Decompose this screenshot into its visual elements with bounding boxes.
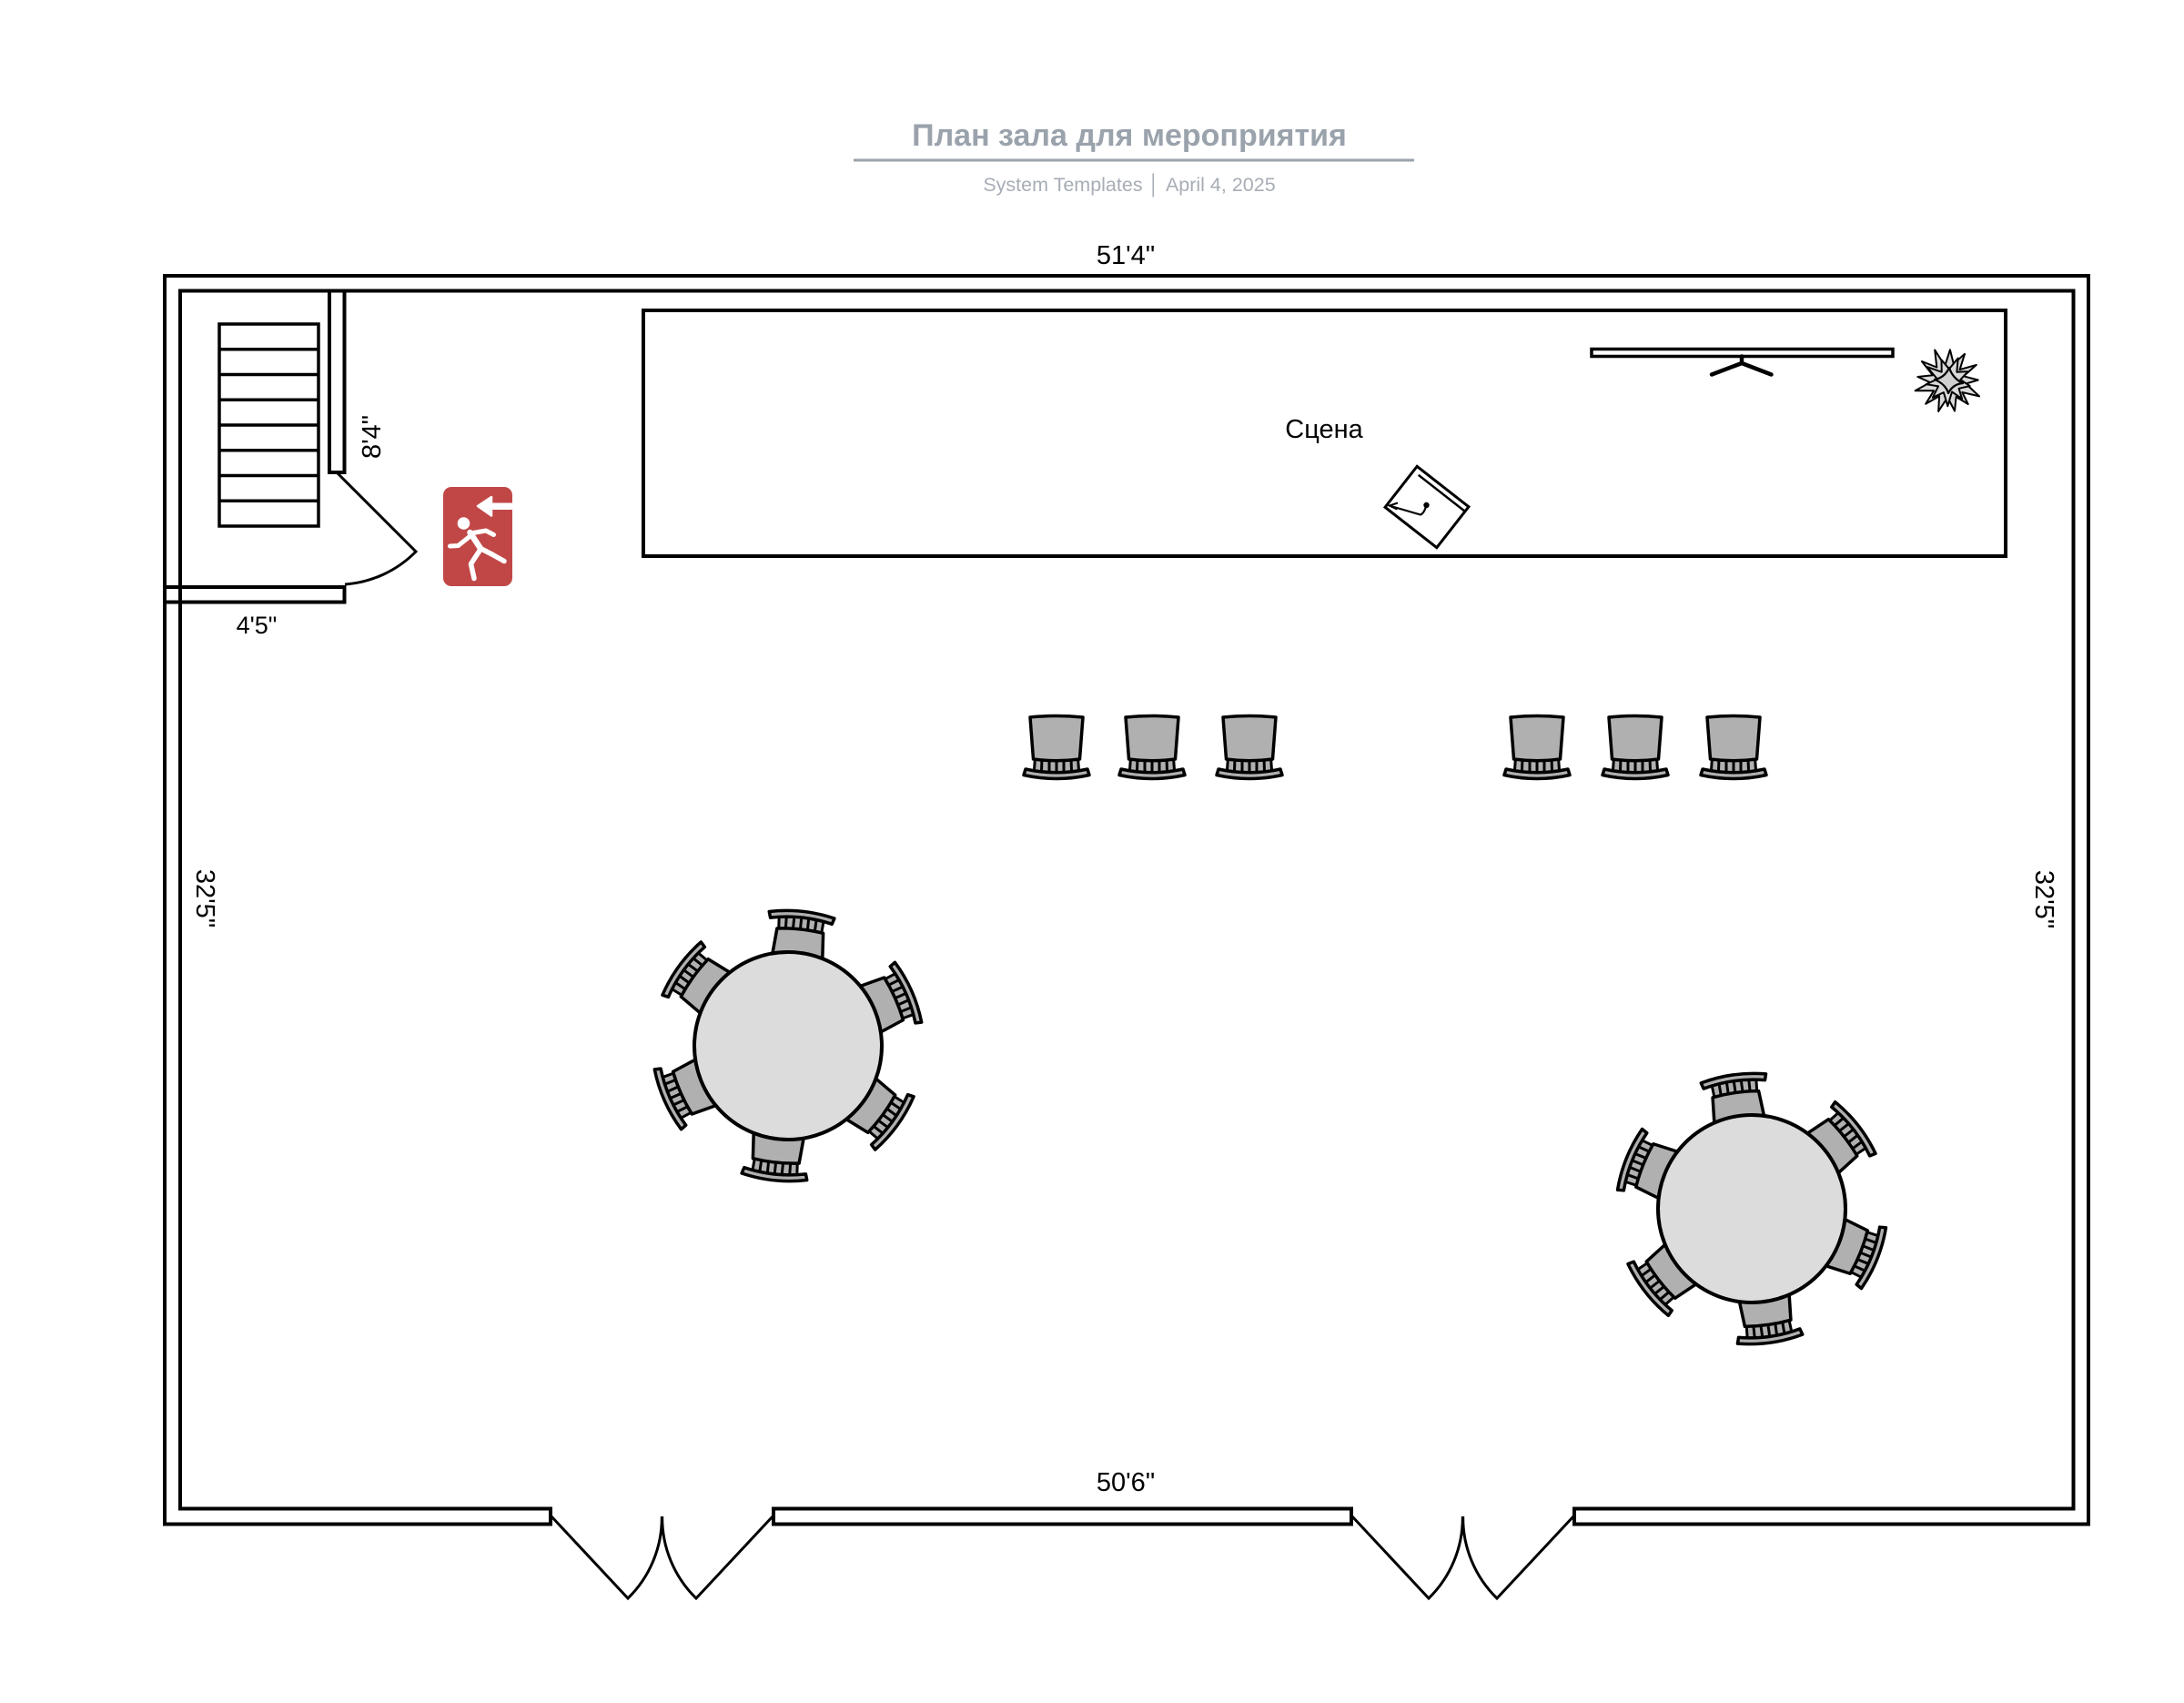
svg-text:32'5": 32'5" [190,869,219,928]
svg-text:4'5": 4'5" [237,612,278,639]
svg-text:32'5": 32'5" [2029,870,2058,928]
svg-text:51'4": 51'4" [1097,241,1155,270]
svg-text:Сцена: Сцена [1285,415,1363,444]
svg-text:8'4": 8'4" [358,415,387,459]
svg-text:План зала для мероприятия: План зала для мероприятия [912,118,1347,153]
svg-text:50'6": 50'6" [1097,1468,1155,1497]
svg-text:System Templates │ April 4, 20: System Templates │ April 4, 2025 [983,173,1275,198]
